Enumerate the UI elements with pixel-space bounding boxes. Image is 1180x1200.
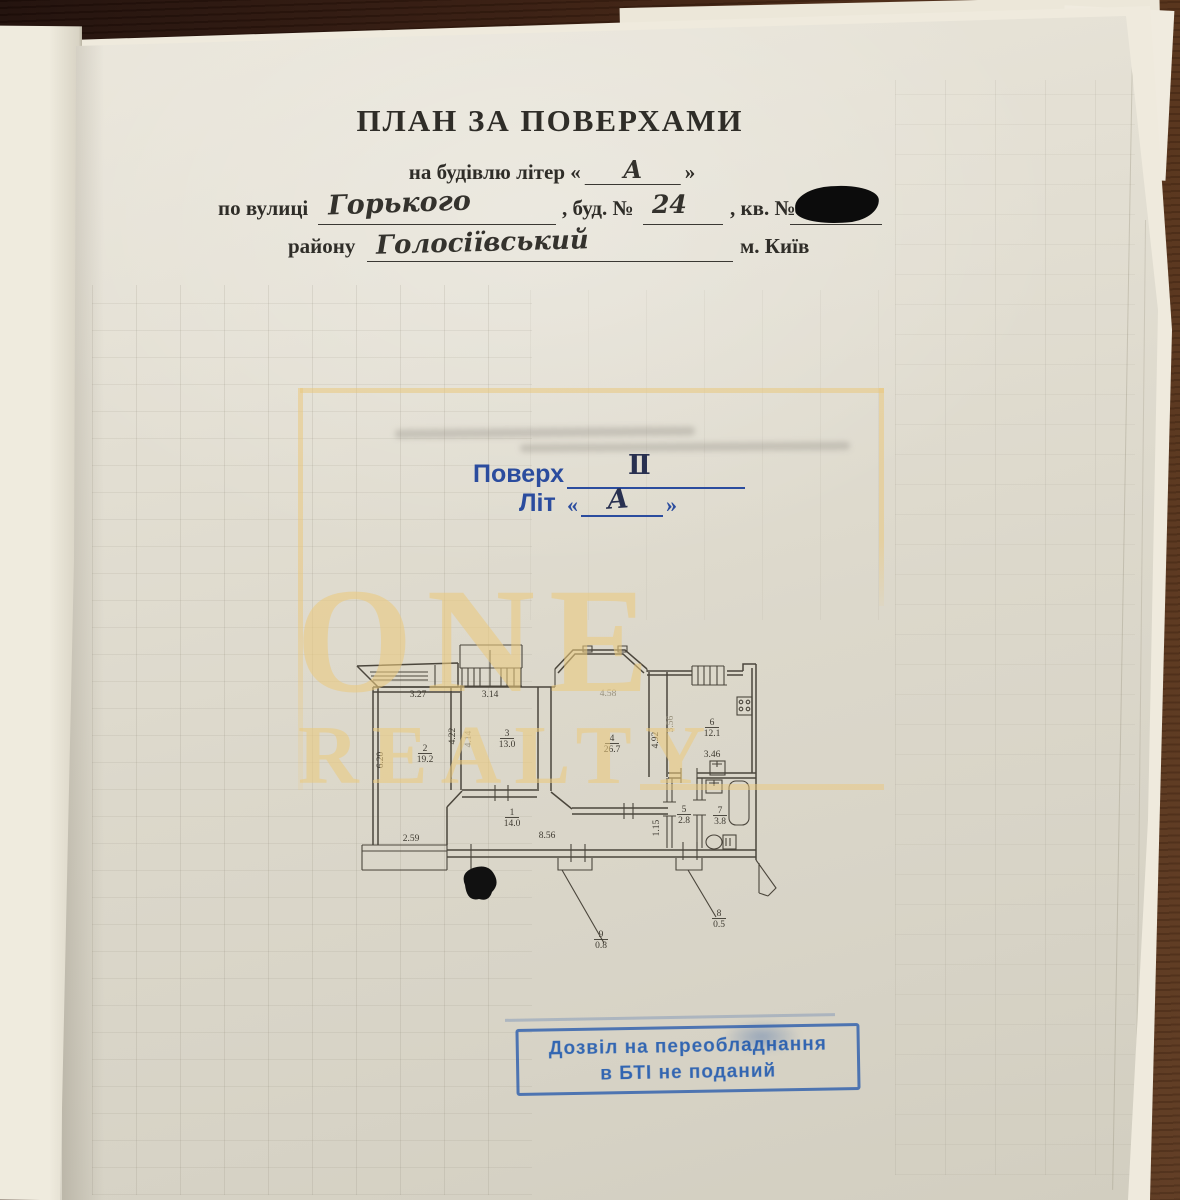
bleed-through-smudge: [520, 442, 850, 452]
building-letter-value: А: [623, 155, 643, 184]
svg-text:3.46: 3.46: [704, 750, 721, 760]
svg-text:8: 8: [717, 909, 722, 919]
watermark-frame-right: [879, 388, 884, 606]
svg-text:12.1: 12.1: [704, 729, 721, 739]
redaction-blob-apartment-number: [794, 184, 880, 225]
floor-stamp-underline: [567, 487, 745, 489]
bleed-through-grid: [530, 290, 890, 620]
apartment-number-underline: [790, 224, 882, 225]
lit-stamp-underline: [581, 515, 663, 517]
svg-text:0.8: 0.8: [595, 941, 607, 951]
svg-text:5: 5: [682, 805, 687, 815]
lit-stamp-label: Літ: [519, 489, 556, 518]
watermark-frame-top: [300, 388, 884, 393]
svg-text:2: 2: [423, 744, 428, 754]
street-value-handwritten: Горького: [328, 186, 472, 222]
svg-text:14.0: 14.0: [504, 819, 521, 829]
street-underline: [318, 224, 556, 225]
svg-text:26.7: 26.7: [604, 745, 621, 755]
ink-blot: [464, 866, 497, 899]
bleed-through-grid: [895, 80, 1135, 1175]
svg-text:3.27: 3.27: [410, 690, 427, 700]
lit-close-quote: »: [666, 492, 677, 518]
lit-open-quote: «: [567, 492, 578, 518]
svg-text:4: 4: [610, 734, 615, 744]
building-letter-suffix: »: [685, 160, 696, 184]
street-label: по вулиці: [218, 196, 308, 221]
building-number-underline: [643, 224, 723, 225]
floor-stamp-value-handwritten: Ⅱ: [628, 450, 651, 481]
lit-stamp-value-handwritten: А: [606, 483, 630, 515]
svg-text:7: 7: [718, 806, 723, 816]
district-underline: [367, 261, 733, 262]
floor-stamp-label: Поверх: [473, 460, 564, 489]
svg-text:4.92: 4.92: [651, 731, 661, 748]
toilet-symbol: [706, 835, 722, 849]
bleed-through-smudge: [395, 426, 695, 438]
svg-text:8.56: 8.56: [539, 831, 556, 841]
page-crease: [1112, 60, 1133, 1190]
building-number-value-handwritten: 24: [652, 190, 687, 219]
district-value-handwritten: Голосіївський: [376, 225, 589, 261]
svg-text:3: 3: [505, 729, 510, 739]
watermark-frame-left: [298, 388, 303, 790]
floor-plan-drawing: 3.273.144.586.204.224.14219.2313.0426.74…: [340, 630, 800, 960]
svg-text:1.15: 1.15: [652, 819, 662, 836]
svg-text:2.8: 2.8: [678, 816, 690, 826]
svg-text:3.8: 3.8: [714, 817, 726, 827]
city-label: м. Київ: [740, 234, 809, 259]
svg-text:0.5: 0.5: [713, 920, 725, 930]
svg-text:9: 9: [599, 930, 604, 940]
svg-text:4.58: 4.58: [600, 689, 617, 699]
apartment-number-label: , кв. №: [730, 196, 796, 221]
svg-text:4.22: 4.22: [448, 727, 458, 744]
svg-text:2.59: 2.59: [403, 834, 420, 844]
district-label: району: [288, 234, 355, 259]
svg-text:3.56: 3.56: [666, 715, 676, 732]
building-letter-prefix: на будівлю літер «: [409, 160, 581, 184]
page-title: ПЛАН ЗА ПОВЕРХАМИ: [357, 103, 744, 139]
building-number-label: , буд. №: [562, 196, 634, 221]
bathtub-symbol: [729, 781, 749, 825]
stove-symbol: [737, 697, 752, 715]
bti-permission-stamp: Дозвіл на переобладнання в БТІ не подани…: [515, 1023, 860, 1096]
svg-text:3.14: 3.14: [482, 690, 499, 700]
document-page: ПЛАН ЗА ПОВЕРХАМИ на будівлю літер « А »…: [0, 0, 1180, 1200]
svg-text:6: 6: [710, 718, 715, 728]
building-letter-line: на будівлю літер « А »: [409, 155, 696, 185]
svg-text:13.0: 13.0: [499, 740, 516, 750]
svg-text:6.20: 6.20: [376, 751, 386, 768]
stamp-smudge-line: [505, 1013, 835, 1022]
svg-text:4.14: 4.14: [464, 730, 474, 747]
svg-text:19.2: 19.2: [417, 755, 434, 765]
svg-text:1: 1: [510, 808, 515, 818]
